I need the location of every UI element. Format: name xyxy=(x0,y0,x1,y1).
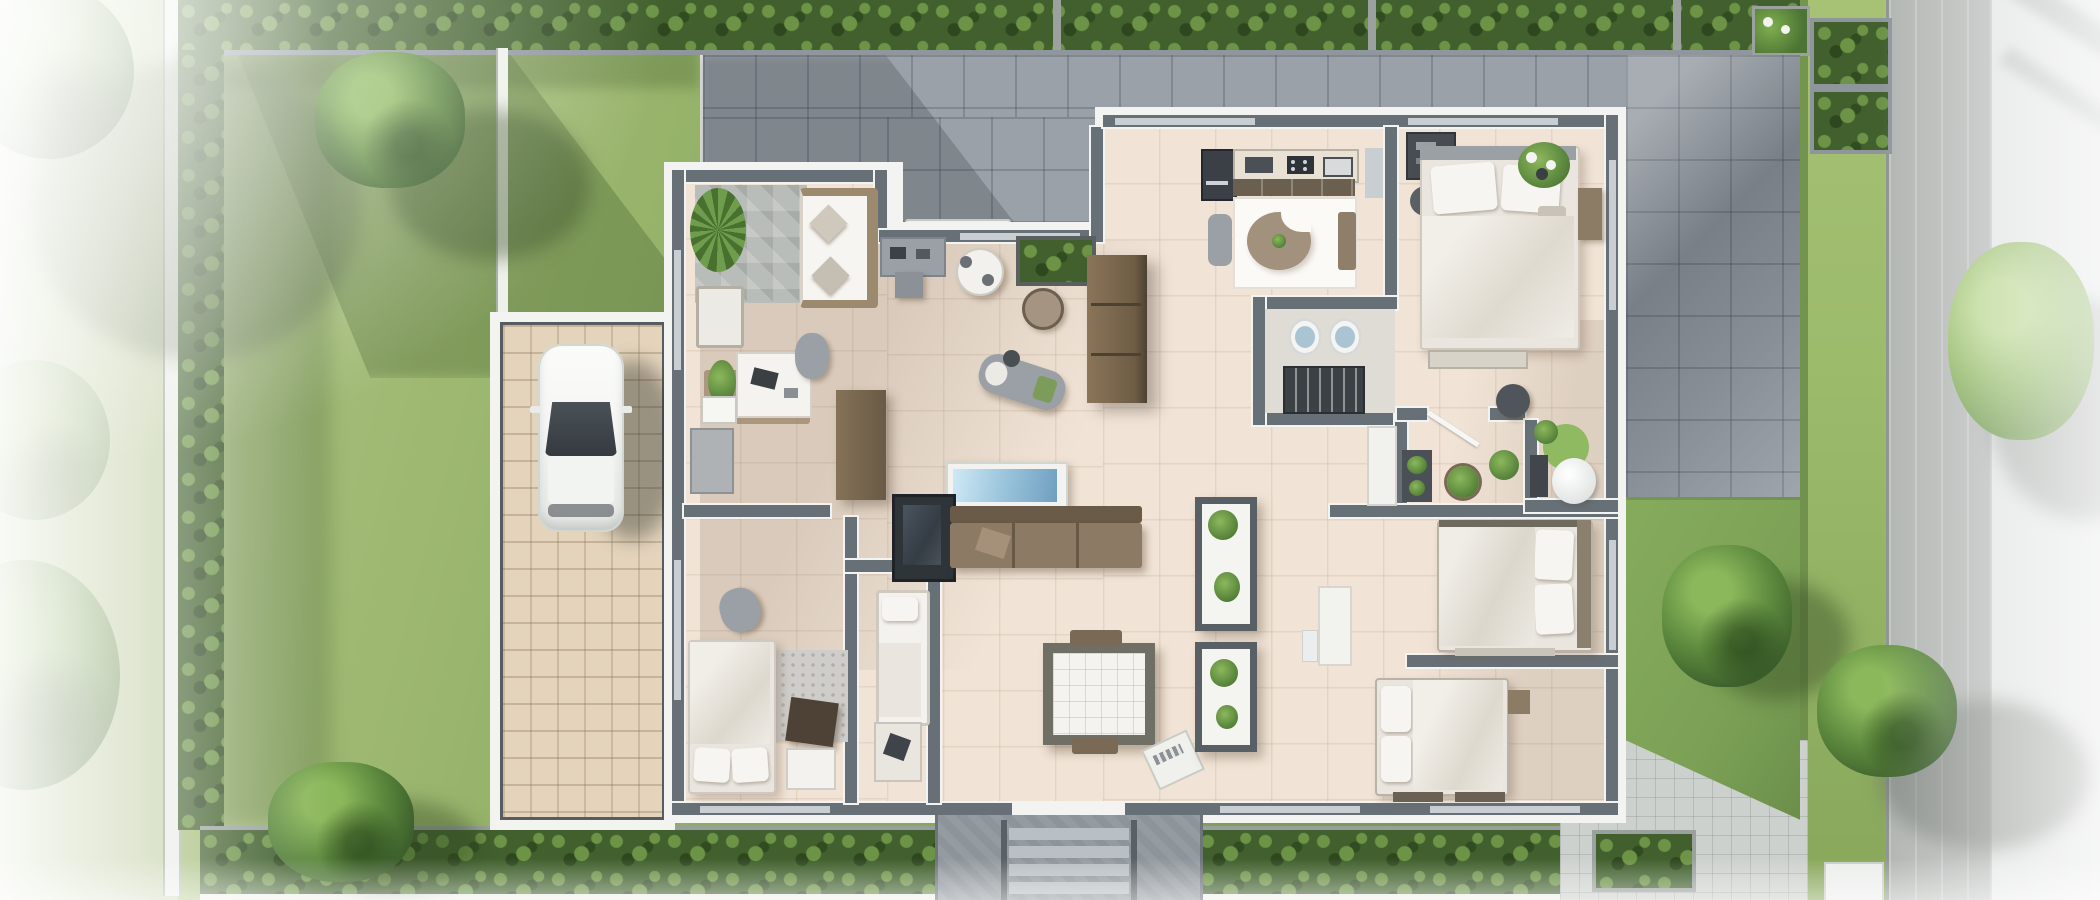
fridge-shelf-line xyxy=(1206,181,1228,185)
rug-notch xyxy=(1281,206,1311,232)
burner xyxy=(1291,167,1295,171)
media-cabinet xyxy=(892,494,956,582)
bed-end-bench xyxy=(1428,350,1528,369)
window-strip xyxy=(1609,540,1616,650)
wall-bathroom-top xyxy=(1253,297,1397,309)
basin xyxy=(1328,318,1362,356)
window-strip xyxy=(1408,118,1558,125)
dark-desk xyxy=(785,697,839,747)
kitchen-round-rug xyxy=(1247,212,1311,270)
round-stool xyxy=(1496,384,1530,418)
step-rail xyxy=(1001,820,1007,900)
lounge-side-table xyxy=(1070,630,1122,646)
headboard xyxy=(1577,520,1591,648)
basin-bowl xyxy=(1295,326,1315,348)
office-box xyxy=(701,396,737,424)
duvet-fold xyxy=(1422,216,1574,338)
kitchen-lower-cabinets xyxy=(1233,179,1355,196)
window-strip xyxy=(1609,160,1616,310)
bed-rail xyxy=(1439,520,1577,527)
basin-bowl xyxy=(1335,326,1355,348)
wall-office-bedroom-left xyxy=(684,505,830,517)
sofa-seat xyxy=(950,523,1142,568)
throw-pillow xyxy=(811,256,849,294)
window-strip xyxy=(1115,118,1255,125)
white-flower xyxy=(1546,160,1556,170)
wall-terrace-step-right xyxy=(1091,127,1103,242)
step-rail xyxy=(1131,820,1137,900)
appliance xyxy=(890,247,906,259)
cabinet-plant xyxy=(1214,572,1240,602)
dark-vase xyxy=(1536,168,1548,180)
duvet-fold xyxy=(1439,522,1535,646)
cooktop xyxy=(1287,156,1314,174)
potted-plant xyxy=(1447,466,1479,498)
step xyxy=(1009,882,1129,894)
lounge-side-table xyxy=(1072,738,1118,754)
square-lounge-chair xyxy=(1043,643,1155,745)
etagere-plant xyxy=(1409,480,1425,496)
burner xyxy=(1303,160,1307,164)
entrance-landing xyxy=(935,815,1203,900)
window-strip xyxy=(700,806,830,813)
step xyxy=(1009,846,1129,858)
office-wardrobe xyxy=(836,390,886,500)
tray-keys xyxy=(1153,744,1184,766)
throw-pillow xyxy=(809,204,847,242)
cabinet-plant xyxy=(1210,659,1238,687)
tv-screen xyxy=(953,469,1057,502)
kitchen-sink xyxy=(1323,157,1353,177)
office-bench xyxy=(696,286,744,348)
wc-shelf xyxy=(1530,455,1548,497)
bed-pillow xyxy=(882,597,918,621)
hall-square-table xyxy=(895,272,923,298)
duvet-fold xyxy=(690,642,770,744)
wall-kitchen-bedroom xyxy=(1385,127,1397,297)
office-sofa xyxy=(800,188,878,308)
front-door-threshold xyxy=(1012,803,1125,815)
white-flower xyxy=(1526,152,1537,163)
table-plant xyxy=(1272,234,1286,248)
hall-planter-box xyxy=(1016,236,1096,286)
chair-mark xyxy=(960,256,972,268)
cabinet-glass xyxy=(903,505,941,565)
step xyxy=(1009,864,1129,876)
desk-item xyxy=(784,388,798,398)
double-bed xyxy=(1375,678,1509,796)
sideboard-divider xyxy=(1091,353,1141,356)
white-dresser xyxy=(786,748,836,790)
etagere-plant xyxy=(1407,456,1427,474)
window-strip xyxy=(1430,806,1580,813)
sofa-cushion-line xyxy=(1076,523,1079,568)
nightstand xyxy=(1508,690,1530,714)
potted-plant xyxy=(1489,450,1519,480)
white-shelf xyxy=(1367,426,1397,506)
bed-end-bench xyxy=(1393,792,1443,802)
chaise-cushion xyxy=(1032,375,1058,404)
sideboard xyxy=(1087,255,1147,403)
round-side-table xyxy=(1022,288,1064,330)
kitchen-bench xyxy=(1338,212,1356,270)
duvet xyxy=(879,643,921,717)
plant-display-cabinet xyxy=(1195,497,1257,631)
wc-plant xyxy=(1534,420,1558,444)
single-bed xyxy=(876,590,930,726)
garden-bush-bottom xyxy=(268,762,414,882)
window-strip xyxy=(1220,806,1360,813)
window-strip xyxy=(674,250,681,370)
office-shelf xyxy=(690,428,734,494)
double-bed xyxy=(688,640,776,794)
street-tree-lower xyxy=(1817,645,1957,777)
bed-end-bench xyxy=(1455,792,1505,802)
counter-appliance xyxy=(1245,157,1273,173)
white-console xyxy=(1318,586,1352,666)
cabinet-plant xyxy=(1208,510,1238,540)
bed-pillow xyxy=(1430,161,1498,214)
double-bed xyxy=(1437,520,1593,652)
sideboard-divider xyxy=(1091,303,1141,306)
plant-display-cabinet xyxy=(1195,642,1257,752)
wall-bathroom-left xyxy=(1253,297,1265,425)
office-chair xyxy=(795,333,829,379)
corner-tree-shadow xyxy=(30,60,360,360)
flower-vase xyxy=(1518,142,1570,188)
under-bed-bench xyxy=(1455,648,1555,656)
laptop xyxy=(750,367,778,390)
kitchen-chair xyxy=(1208,214,1232,266)
street-tree-upper xyxy=(1948,242,2094,440)
bathroom-shelf-unit xyxy=(1283,366,1365,414)
step xyxy=(1009,828,1129,840)
wall-top-left-wing xyxy=(672,170,887,182)
sofa-cushion-line xyxy=(1012,523,1015,568)
kitchen-door xyxy=(1365,148,1383,198)
bed-pillow xyxy=(1381,736,1411,782)
fridge xyxy=(1201,149,1237,201)
bed-pillow xyxy=(1534,583,1575,635)
palm-plant xyxy=(690,188,746,272)
round-dining-table xyxy=(956,248,1004,296)
aerial-floor-plan-render xyxy=(0,0,2100,900)
kitchen-counter xyxy=(1233,149,1359,183)
small-dark-table xyxy=(1003,350,1020,367)
sofa-back xyxy=(950,506,1142,523)
back-lawn-bush xyxy=(1662,545,1792,687)
nightstand xyxy=(1578,188,1602,240)
bed-pillow xyxy=(731,747,769,783)
window-strip xyxy=(674,560,681,700)
hall-kitchenette-unit xyxy=(880,237,946,277)
wall-bedrooms-right-divider xyxy=(1407,655,1618,667)
bed-pillow xyxy=(1381,686,1411,732)
wall-bathroom-bottom xyxy=(1253,413,1407,425)
burner xyxy=(1291,160,1295,164)
wall-corridor-top-a xyxy=(1397,408,1427,420)
duvet-fold xyxy=(1413,680,1503,790)
wc-fixture xyxy=(1552,458,1596,504)
plant-etagere xyxy=(1402,450,1432,502)
sofa-throw xyxy=(975,527,1011,559)
bed-pillow xyxy=(1534,529,1575,581)
white-console-small xyxy=(1302,630,1318,662)
burner xyxy=(1303,167,1307,171)
basin xyxy=(1288,318,1322,356)
cabinet-plant xyxy=(1216,705,1238,729)
chair-mark xyxy=(982,274,994,286)
bed-pillow xyxy=(693,747,731,783)
appliance xyxy=(916,249,930,259)
